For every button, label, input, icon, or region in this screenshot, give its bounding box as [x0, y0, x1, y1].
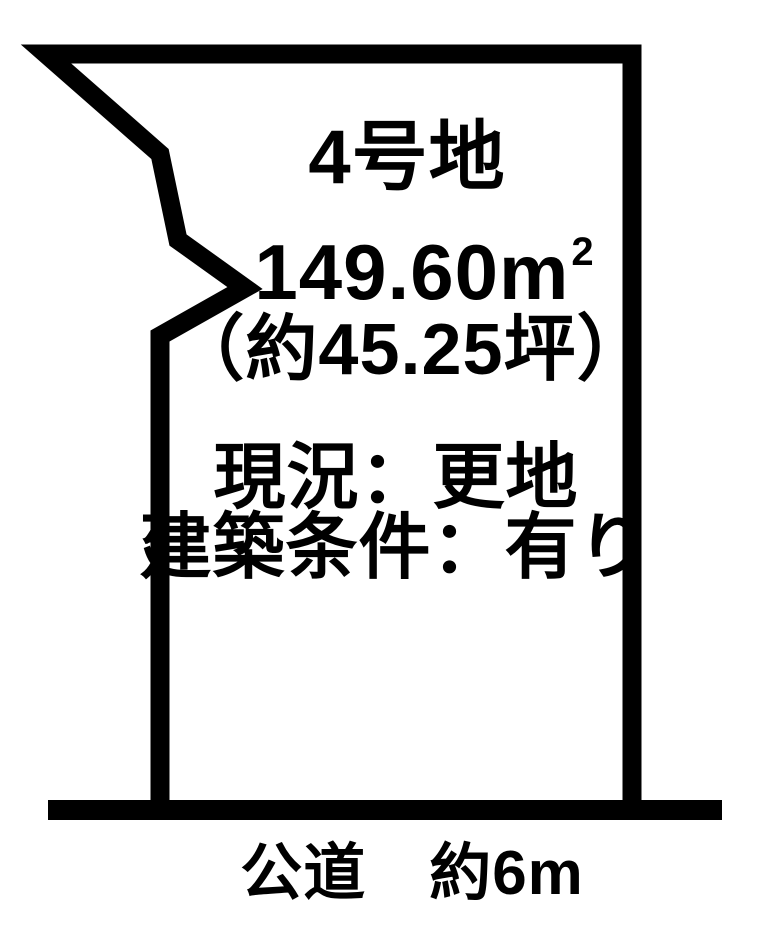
plot-status-current: 現況：更地 — [213, 442, 578, 514]
plot-title: 4号地 — [308, 120, 505, 196]
plot-area-m2-value: 149.60m — [254, 228, 569, 316]
plot-area-tsubo: （約45.25坪） — [172, 314, 649, 386]
road-label: 公道 約6m — [240, 843, 584, 905]
plot-status-conditions: 建築条件：有り — [139, 512, 650, 584]
plot-area-superscript: 2 — [571, 230, 593, 274]
plot-area-m2: 149.60m2 — [254, 232, 593, 311]
land-plot-diagram: 4号地 149.60m2 （約45.25坪） 現況：更地 建築条件：有り 公道 … — [0, 0, 758, 949]
